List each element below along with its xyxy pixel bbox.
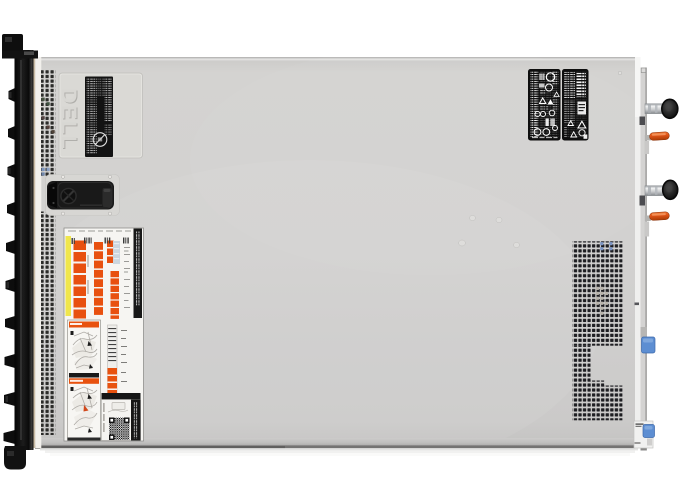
svg-text:DELL: DELL — [57, 88, 81, 150]
